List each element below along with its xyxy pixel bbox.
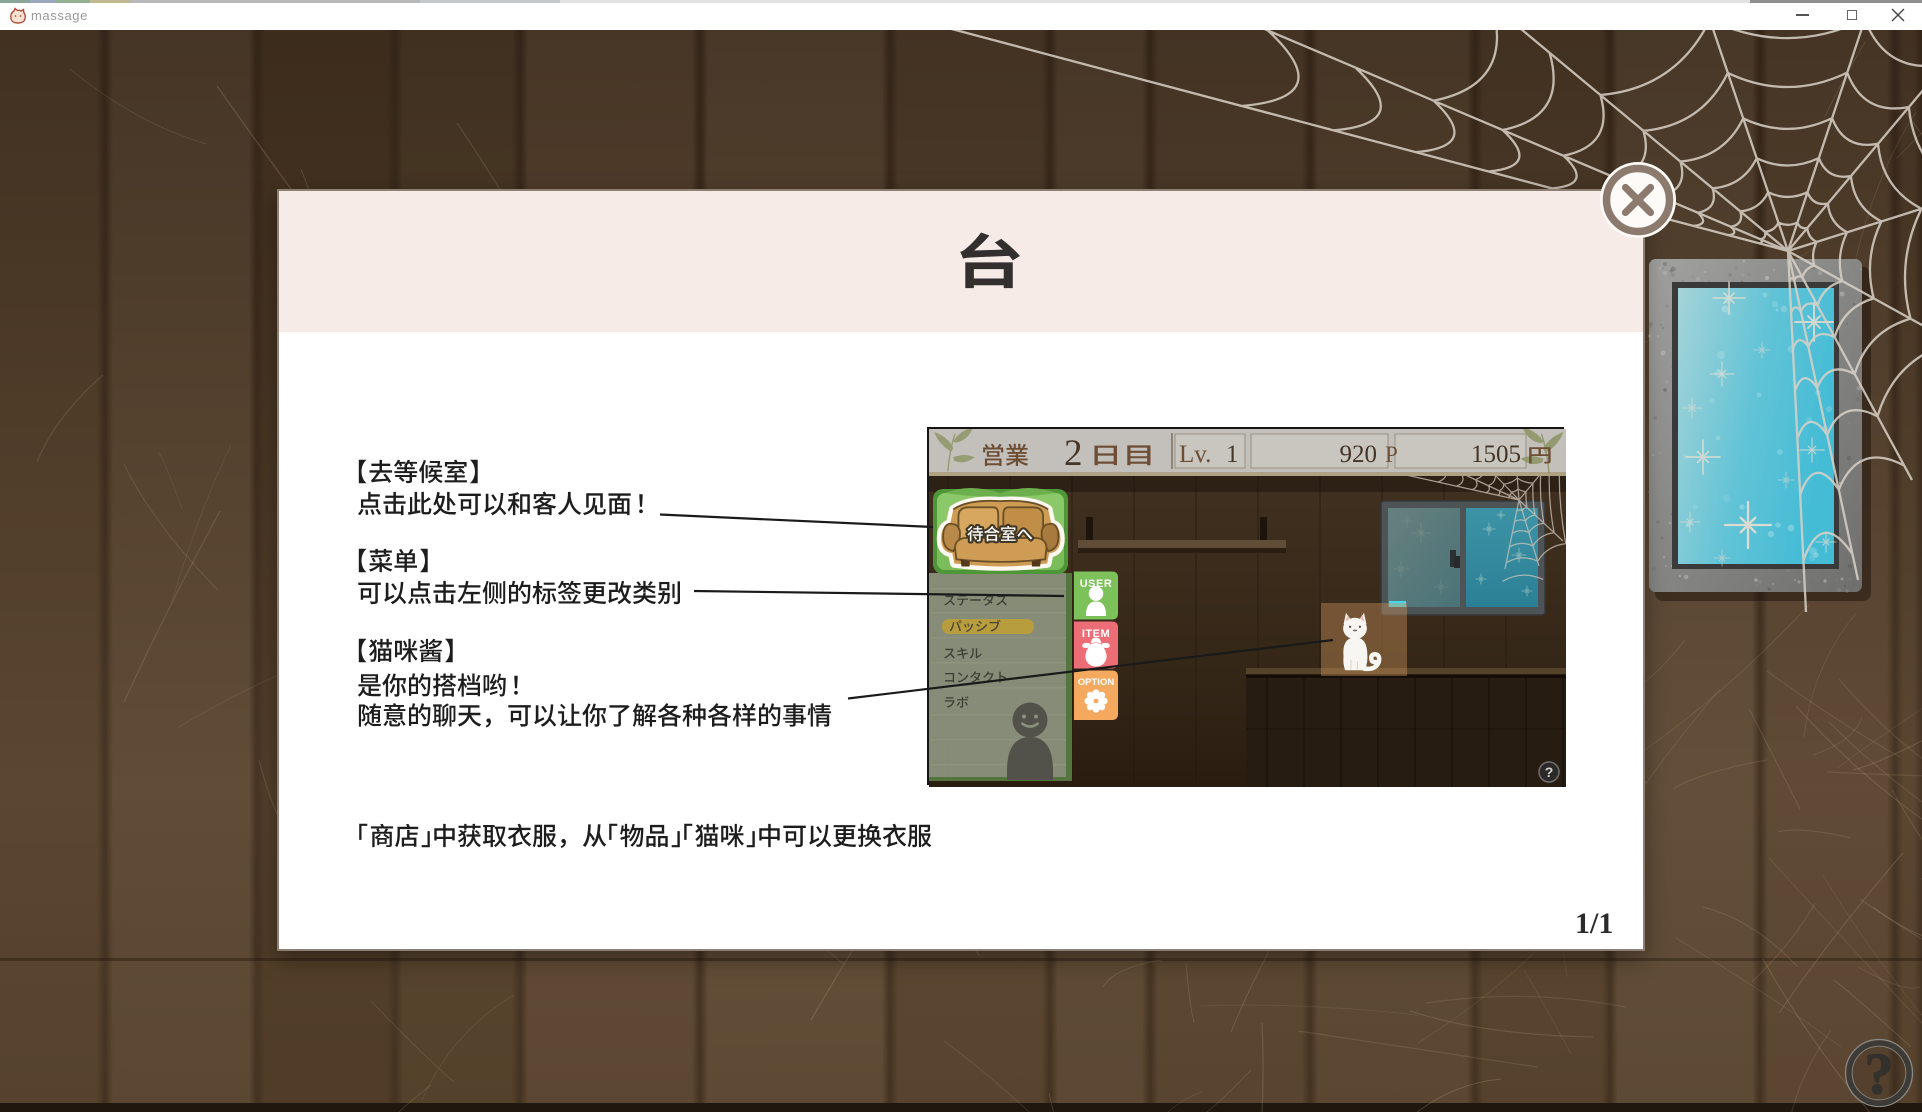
svg-text:?: ? [1865,1041,1894,1106]
